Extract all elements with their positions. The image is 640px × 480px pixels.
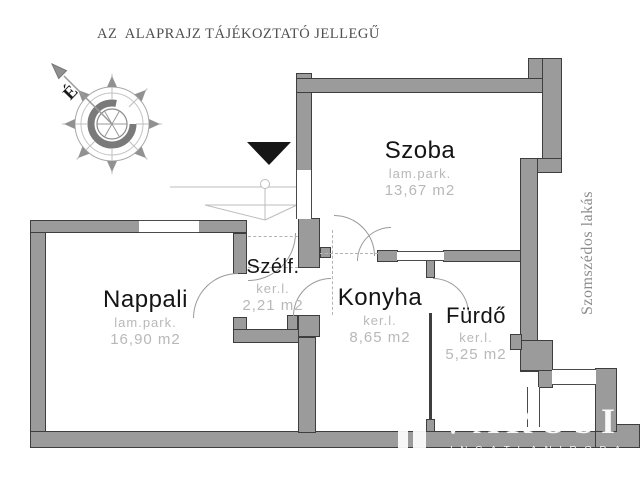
watermark-logo-icon: [413, 412, 426, 458]
room-area: 5,25 m2: [445, 346, 506, 363]
wall-szoba-top: [296, 78, 562, 93]
window-szoba-left: [296, 170, 312, 219]
wall-left: [30, 220, 46, 448]
compass-rose-icon: [38, 56, 188, 176]
room-area: 2,21 m2: [242, 297, 303, 314]
partition-szoba-bottom: [397, 251, 444, 261]
room-label-szelfogo: Szélf. ker.l. 2,21 m2: [223, 257, 323, 314]
room-name: Konyha: [338, 285, 422, 310]
watermark-logo-icon: [398, 426, 408, 458]
neighbor-apartment-label: Szomszédos lakás: [579, 197, 599, 315]
room-name: Nappali: [103, 287, 188, 312]
agency-watermark: VÁROSI INGATLANIRODA: [388, 398, 640, 462]
room-name: Szoba: [385, 138, 456, 163]
wall-szelf-bottom: [233, 329, 300, 343]
wall-nappali-top-left: [30, 220, 140, 233]
room-floor-type: ker.l.: [459, 330, 492, 345]
wall-right-jamb: [538, 370, 553, 388]
wall-szelf-lower-tab: [287, 315, 298, 330]
wall-nappali-top-right: [198, 220, 247, 233]
room-floor-type: ker.l.: [256, 281, 289, 296]
dashed-line-entry-top: [248, 236, 298, 237]
room-floor-type: ker.l.: [363, 313, 396, 328]
watermark-brand-name: VÁROSI: [440, 400, 622, 442]
room-area: 16,90 m2: [110, 331, 181, 348]
wall-szoba-bottom-b: [443, 250, 521, 262]
room-floor-type: lam.park.: [114, 315, 176, 330]
room-label-nappali: Nappali lam.park. 16,90 m2: [73, 287, 218, 348]
window-neighbor: [552, 369, 596, 385]
room-label-furdo: Fürdő ker.l. 5,25 m2: [417, 304, 535, 363]
entrance-marker-icon: [247, 142, 291, 165]
wall-nappali-konyha: [298, 337, 316, 433]
room-floor-type: lam.park.: [389, 166, 451, 181]
room-area: 13,67 m2: [385, 182, 456, 199]
room-name: Fürdő: [446, 304, 506, 327]
room-area: 8,65 m2: [349, 329, 410, 346]
watermark-brand-subtitle: INGATLANIRODA: [450, 445, 628, 456]
room-label-szoba: Szoba lam.park. 13,67 m2: [340, 138, 500, 199]
floorplan-canvas: AZ ALAPRAJZ TÁJÉKOZTATÓ JELLEGŰ: [0, 0, 640, 480]
room-name: Szélf.: [246, 257, 299, 278]
window-nappali: [139, 220, 199, 233]
wall-szoba-right-upper: [542, 58, 562, 172]
plan-disclaimer-text: AZ ALAPRAJZ TÁJÉKOZTATÓ JELLEGŰ: [97, 26, 380, 43]
dashed-line-konyha-top: [320, 253, 378, 254]
